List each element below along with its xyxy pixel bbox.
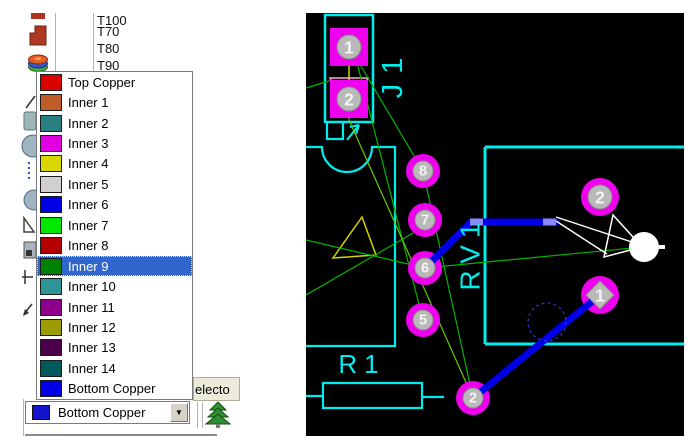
pad-number: 5	[419, 313, 427, 329]
combo-layer-swatch	[32, 405, 50, 420]
layer-color-swatch	[40, 360, 62, 377]
layer-color-swatch	[40, 339, 62, 356]
layer-color-swatch	[40, 94, 62, 111]
layer-color-swatch	[40, 258, 62, 275]
layer-option[interactable]: Inner 3	[37, 133, 192, 153]
layer-option[interactable]: Inner 7	[37, 215, 192, 235]
layer-selector-combo[interactable]: Bottom Copper ▼	[25, 401, 190, 424]
selector-pane-tab[interactable]: electo	[193, 377, 240, 401]
toolbar-divider	[197, 402, 198, 428]
cursor-target-dot[interactable]	[629, 232, 659, 262]
toolbar-divider	[55, 13, 56, 71]
layer-option[interactable]: Inner 13	[37, 338, 192, 358]
layer-option-label: Inner 4	[68, 156, 108, 171]
dimension-tool-icon[interactable]	[22, 270, 33, 284]
layer-option[interactable]: Inner 11	[37, 297, 192, 317]
pad-number: 1	[595, 286, 605, 306]
layer-option[interactable]: Inner 2	[37, 113, 192, 133]
component-tool-icon[interactable]	[24, 242, 36, 258]
layer-option-label: Inner 1	[68, 95, 108, 110]
layer-option-label: Inner 11	[68, 300, 115, 315]
pad-number: 2	[344, 90, 354, 110]
2d-polygon-tool-icon[interactable]	[24, 218, 34, 232]
layer-option-label: Inner 7	[68, 218, 108, 233]
pad-number: 7	[421, 213, 429, 229]
panel-bottom-border	[25, 434, 217, 436]
layer-option-label: Inner 10	[68, 279, 116, 294]
layer-option[interactable]: Inner 10	[37, 276, 192, 296]
layer-option[interactable]: Inner 6	[37, 195, 192, 215]
layer-stack-icon[interactable]	[29, 55, 48, 72]
pad-number: 8	[419, 164, 427, 180]
layer-option[interactable]: Inner 4	[37, 154, 192, 174]
layer-option-label: Top Copper	[68, 75, 135, 90]
toolbar-icon-partial[interactable]	[31, 13, 45, 19]
layer-option[interactable]: Inner 14	[37, 358, 192, 378]
layer-option[interactable]: Inner 12	[37, 317, 192, 337]
layer-option-label: Bottom Copper	[68, 381, 155, 396]
layer-option-label: Inner 5	[68, 177, 108, 192]
layer-color-swatch	[40, 299, 62, 316]
layer-color-swatch	[40, 237, 62, 254]
layer-option-label: Inner 3	[68, 136, 108, 151]
layer-option-label: Inner 14	[68, 361, 116, 376]
zone-tool-icon[interactable]	[30, 26, 46, 45]
chevron-down-icon: ▼	[175, 408, 183, 417]
ratsnest-line[interactable]	[306, 240, 425, 268]
layer-option-label: Inner 2	[68, 116, 108, 131]
layer-color-swatch	[40, 135, 62, 152]
marker-tool-icon[interactable]	[23, 304, 32, 316]
layer-option[interactable]: Top Copper	[37, 72, 192, 92]
layer-color-swatch	[40, 176, 62, 193]
layer-option[interactable]: Bottom Copper	[37, 379, 192, 399]
combo-layer-value: Bottom Copper	[58, 405, 170, 420]
2d-box-tool-icon[interactable]	[24, 112, 36, 130]
layer-option-label: Inner 8	[68, 238, 108, 253]
ratsnest-line[interactable]	[306, 225, 427, 295]
selector-pane-label: electo	[195, 382, 230, 397]
component-ref-label: R1	[338, 349, 385, 379]
copper-trace[interactable]	[473, 295, 600, 398]
layer-option[interactable]: Inner 8	[37, 236, 192, 256]
pcb-artwork[interactable]: 128765212J1RV1R1	[306, 13, 684, 436]
track-style-list[interactable]: T70T80T90T100	[95, 13, 187, 73]
layer-option-label: Inner 9	[68, 259, 108, 274]
track-style-item[interactable]: T80	[97, 41, 119, 58]
layer-option[interactable]: Inner 9	[37, 256, 192, 276]
combo-dropdown-button[interactable]: ▼	[170, 403, 188, 422]
layer-dropdown-list[interactable]: Top Copper Inner 1 Inner 2 Inner 3 Inner…	[36, 71, 193, 400]
layer-color-swatch	[40, 319, 62, 336]
ic-outline[interactable]	[306, 147, 395, 346]
layer-color-swatch	[40, 217, 62, 234]
layer-option-label: Inner 13	[68, 340, 116, 355]
pad-number: 1	[344, 38, 354, 58]
pad-number: 2	[595, 188, 605, 208]
pad-number: 6	[421, 261, 429, 277]
j1-pin1-bracket[interactable]	[327, 122, 343, 139]
resistor-r1-outline[interactable]	[306, 383, 444, 408]
component-ref-label: RV1	[455, 216, 486, 291]
layer-option[interactable]: Inner 1	[37, 92, 192, 112]
layer-color-swatch	[40, 278, 62, 295]
panel-left-border	[23, 399, 24, 436]
selector-tree-icon[interactable]	[205, 400, 231, 430]
2d-line-tool-icon[interactable]	[26, 96, 35, 108]
layer-option-label: Inner 6	[68, 197, 108, 212]
layer-color-swatch	[40, 196, 62, 213]
component-ref-label: J1	[377, 48, 409, 99]
layer-option[interactable]: Inner 5	[37, 174, 192, 194]
toolbar-divider	[202, 402, 203, 428]
list-divider	[93, 13, 94, 71]
layer-color-swatch	[40, 74, 62, 91]
layer-color-swatch	[40, 380, 62, 397]
ares-pcb-app: T70T80T90T100 Top Copper Inner 1 Inner 2…	[0, 0, 692, 440]
ratsnest-line[interactable]	[306, 80, 332, 88]
layer-color-swatch	[40, 155, 62, 172]
pad-number: 2	[469, 391, 477, 407]
layer-color-swatch	[40, 115, 62, 132]
layer-option-label: Inner 12	[68, 320, 116, 335]
track-style-item[interactable]: T100	[97, 13, 127, 30]
